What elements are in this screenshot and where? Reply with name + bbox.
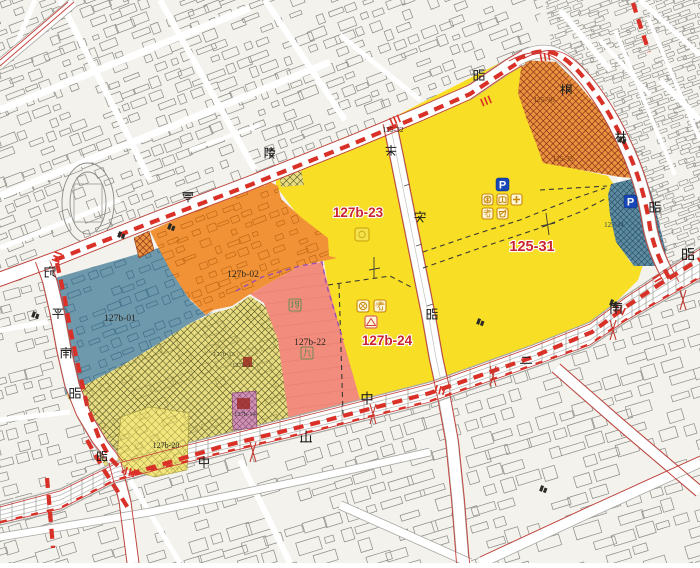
svg-text:P: P [499,179,506,191]
svg-text:P: P [627,196,634,208]
svg-text:127b-22: 127b-22 [294,338,326,348]
svg-text:125-36: 125-36 [533,95,554,104]
svg-text:127b-20: 127b-20 [153,441,180,450]
svg-text:127b-24: 127b-24 [362,333,413,348]
svg-text:125-32: 125-32 [382,125,403,134]
svg-text:127b-13: 127b-13 [213,351,235,358]
svg-text:125-34: 125-34 [604,221,624,229]
svg-text:127b-23: 127b-23 [333,205,384,220]
svg-text:127b-12: 127b-12 [232,362,254,369]
svg-text:127b-14: 127b-14 [234,411,256,418]
svg-text:125-35: 125-35 [552,154,573,163]
svg-text:127b-01: 127b-01 [104,314,136,324]
svg-text:127b-02: 127b-02 [227,270,259,280]
svg-text:125-31: 125-31 [509,239,554,255]
